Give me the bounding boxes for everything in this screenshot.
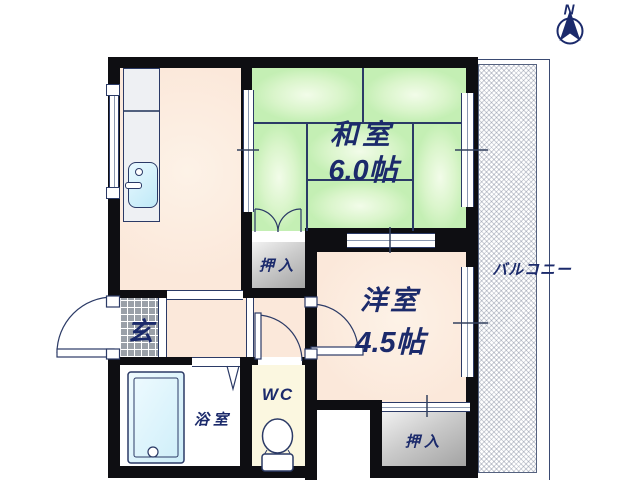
youshitsu-door-swing-icon — [305, 297, 363, 359]
label-closet-youshitsu: 押入 — [405, 431, 443, 452]
label-wc: WC — [262, 385, 294, 405]
label-youshitsu-size: 4.5帖 — [355, 319, 424, 361]
bathtub-icon — [128, 372, 184, 463]
entrance-door-swing-icon — [57, 296, 120, 359]
floor-plan: 和室 6.0帖 洋室 4.5帖 玄 浴室 WC 押入 押入 バルコニー N — [0, 0, 640, 480]
bathroom-door-icon — [227, 366, 239, 389]
plan-symbols — [0, 0, 640, 480]
label-bathroom: 浴室 — [194, 409, 232, 430]
wc-door-swing-icon — [255, 313, 302, 361]
toilet-icon — [262, 419, 293, 471]
closet-double-door-icon — [255, 209, 301, 232]
label-balcony: バルコニー — [492, 259, 572, 280]
label-closet-washitsu: 押入 — [259, 255, 297, 276]
label-north: N — [564, 2, 575, 19]
label-genkan: 玄 — [127, 312, 153, 349]
label-washitsu-size: 6.0帖 — [328, 147, 397, 189]
label-youshitsu-name: 洋室 — [360, 279, 420, 318]
